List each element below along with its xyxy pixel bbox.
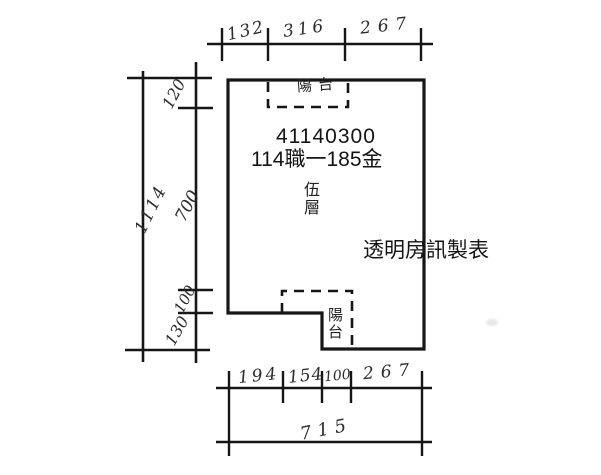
dim-bottom-seg3: 100: [323, 368, 351, 385]
dim-bottom-seg1: 194: [237, 366, 280, 387]
dim-bottom-seg4: 267: [362, 362, 417, 384]
front-balcony-char1: 陽: [296, 76, 318, 95]
unit-outline: [228, 80, 424, 349]
balcony-label-char1: 陽: [328, 307, 343, 324]
property-id: 41140300: [276, 125, 376, 148]
scan-smudge: [486, 319, 498, 326]
publisher-watermark: 透明房訊製表: [363, 239, 489, 262]
front-balcony-char2: 台: [317, 75, 339, 94]
case-label: 114職一185金: [251, 148, 383, 171]
front-balcony-label: 陽台: [296, 76, 339, 96]
floor-plan-sheet: 132 316 267 1114 120 700 100 130 194 154…: [0, 0, 601, 475]
balcony-label: 陽 台: [328, 307, 343, 342]
floor-label: 伍 層: [304, 181, 320, 218]
balcony-label-char2: 台: [328, 324, 343, 341]
floor-label-char2: 層: [304, 199, 320, 217]
dim-bottom-seg2: 154: [287, 366, 324, 387]
floor-plan-linework: [0, 0, 601, 475]
floor-label-char1: 伍: [304, 181, 320, 199]
